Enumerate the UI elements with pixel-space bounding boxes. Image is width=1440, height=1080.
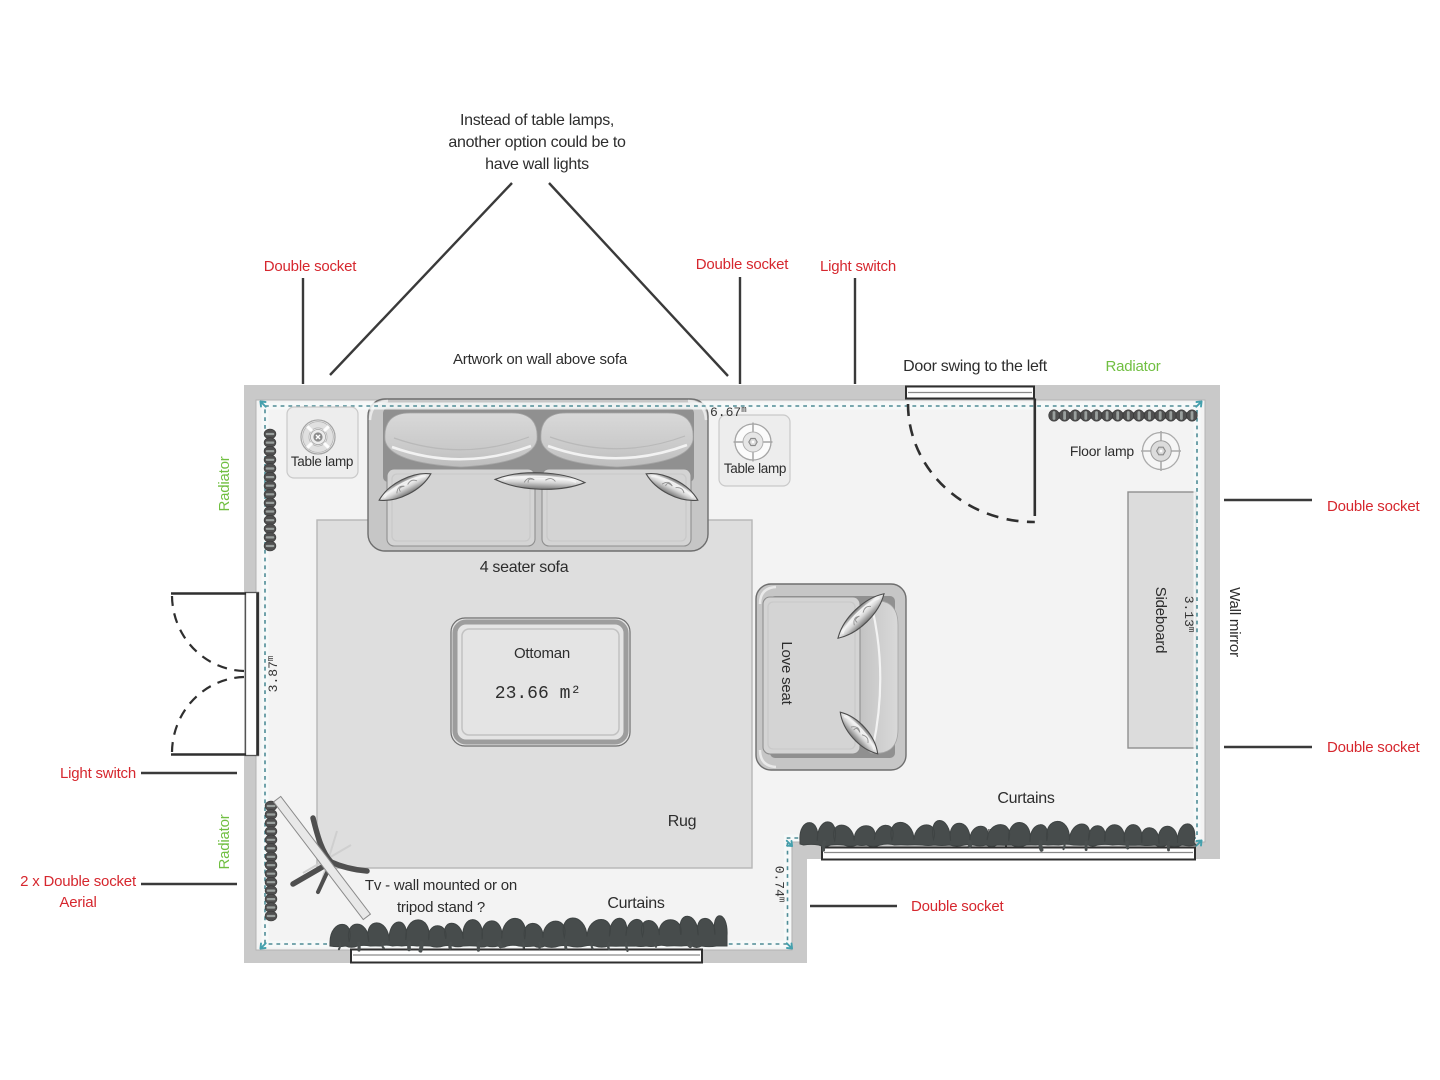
svg-text:3.87m: 3.87m: [266, 656, 281, 693]
svg-text:Sideboard: Sideboard: [1152, 587, 1169, 654]
svg-text:another option could be to: another option could be to: [448, 134, 626, 151]
svg-text:Love seat: Love seat: [778, 641, 795, 705]
svg-text:Aerial: Aerial: [59, 894, 96, 911]
svg-text:4 seater sofa: 4 seater sofa: [480, 559, 569, 576]
svg-text:Light switch: Light switch: [820, 258, 896, 275]
svg-text:Ottoman: Ottoman: [514, 645, 570, 662]
svg-text:Tv - wall mounted or on: Tv - wall mounted or on: [365, 877, 517, 894]
svg-text:Artwork on wall above sofa: Artwork on wall above sofa: [453, 351, 628, 368]
svg-text:Light switch: Light switch: [60, 765, 136, 782]
svg-text:2 x Double socket: 2 x Double socket: [20, 873, 137, 890]
svg-text:Curtains: Curtains: [997, 790, 1054, 807]
svg-text:Table lamp: Table lamp: [724, 461, 786, 476]
svg-text:Double socket: Double socket: [264, 258, 357, 275]
svg-text:Radiator: Radiator: [216, 814, 233, 869]
svg-text:Floor lamp: Floor lamp: [1070, 443, 1135, 459]
svg-text:Double socket: Double socket: [696, 256, 789, 273]
svg-text:Curtains: Curtains: [607, 895, 664, 912]
svg-text:Door swing to the left: Door swing to the left: [903, 358, 1048, 375]
svg-text:Table lamp: Table lamp: [291, 454, 353, 469]
svg-text:Double socket: Double socket: [1327, 739, 1420, 756]
svg-text:Double socket: Double socket: [1327, 498, 1420, 515]
svg-text:Radiator: Radiator: [1105, 358, 1160, 375]
svg-text:tripod stand ?: tripod stand ?: [397, 899, 485, 916]
svg-text:23.66 m²: 23.66 m²: [495, 684, 581, 704]
svg-text:6.67m: 6.67m: [710, 405, 747, 420]
svg-text:Rug: Rug: [668, 813, 696, 830]
svg-text:have wall lights: have wall lights: [485, 156, 589, 173]
svg-text:Double socket: Double socket: [911, 898, 1004, 915]
svg-text:0.74m: 0.74m: [772, 866, 787, 903]
svg-text:3.13m: 3.13m: [1181, 596, 1196, 633]
svg-text:Wall mirror: Wall mirror: [1226, 587, 1243, 657]
svg-text:Radiator: Radiator: [216, 456, 233, 511]
svg-text:Instead of table lamps,: Instead of table lamps,: [460, 112, 614, 129]
